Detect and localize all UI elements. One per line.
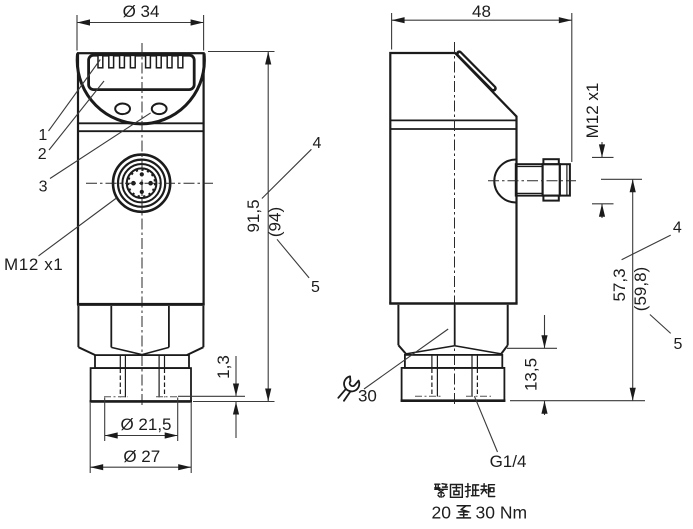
svg-text:1,3: 1,3	[214, 355, 233, 379]
svg-text:M12 x1: M12 x1	[583, 83, 602, 139]
svg-text:5: 5	[311, 279, 320, 296]
svg-text:13,5: 13,5	[522, 358, 541, 391]
svg-text:30 Nm: 30 Nm	[476, 503, 528, 523]
svg-text:2: 2	[38, 146, 47, 163]
svg-text:Ø 27: Ø 27	[123, 447, 160, 466]
svg-text:30: 30	[358, 387, 377, 406]
svg-text:4: 4	[673, 220, 682, 237]
svg-text:(94): (94)	[266, 207, 285, 237]
svg-text:1: 1	[38, 127, 47, 144]
svg-text:(59,8): (59,8)	[631, 267, 650, 311]
svg-text:5: 5	[674, 336, 683, 353]
svg-text:4: 4	[313, 135, 322, 152]
svg-text:20: 20	[432, 503, 452, 523]
svg-text:Ø 34: Ø 34	[123, 2, 160, 21]
svg-text:48: 48	[472, 2, 491, 21]
svg-text:57,3: 57,3	[610, 268, 629, 301]
svg-text:3: 3	[39, 179, 48, 196]
svg-text:G1/4: G1/4	[490, 452, 527, 471]
svg-text:Ø 21,5: Ø 21,5	[120, 415, 171, 434]
svg-text:M12 x1: M12 x1	[4, 255, 63, 274]
svg-text:91,5: 91,5	[244, 199, 263, 232]
